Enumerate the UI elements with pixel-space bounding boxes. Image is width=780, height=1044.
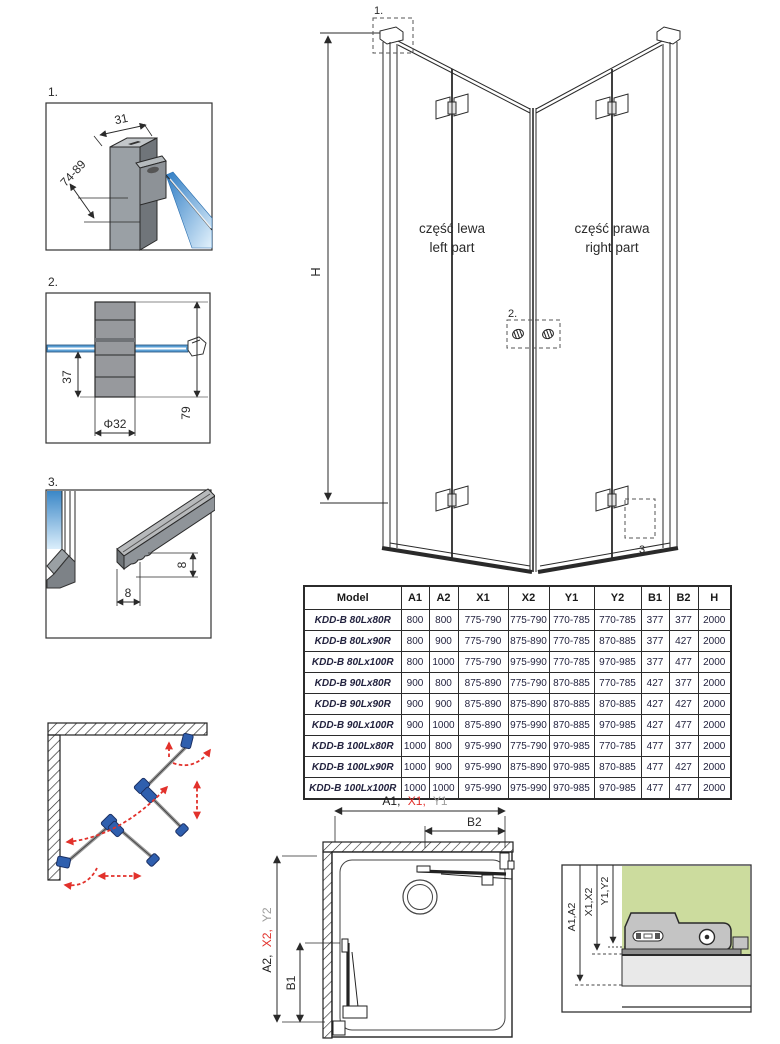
dim-label-37: 37 (60, 370, 74, 384)
col-header-b2: B2 (669, 586, 698, 610)
glass-panel (47, 491, 62, 549)
cell-value: 427 (641, 673, 669, 694)
table-header-row: Model A1 A2 X1 X2 Y1 Y2 B1 B2 H (304, 586, 731, 610)
dimension-a2-x2-y2: A2, X2, Y2 (260, 856, 325, 1022)
cell-value: 970-985 (549, 778, 594, 800)
hinge-block (417, 866, 430, 872)
cell-value: 900 (401, 694, 429, 715)
detail-3-number: 3. (48, 475, 58, 489)
callout-3-label: 3. (639, 544, 648, 556)
cell-value: 2000 (698, 673, 731, 694)
cell-value: 900 (429, 631, 458, 652)
cell-value: 2000 (698, 757, 731, 778)
knob-icon (541, 328, 554, 340)
cell-value: 875-890 (508, 757, 549, 778)
cell-value: 800 (429, 673, 458, 694)
left-part-label-pl: część lewa (419, 221, 486, 236)
wall-mount-detail: A1,A2 X1,X2 Y1,Y2 (555, 855, 780, 1020)
table-row: KDD-B 80Lx80R 800 800 775-790 775-790 77… (304, 610, 731, 631)
cell-value: 975-990 (508, 715, 549, 736)
hinge-block-icon (56, 856, 71, 868)
cell-value: 775-790 (458, 652, 508, 673)
cell-value: 875-890 (508, 631, 549, 652)
label-a2: A2, (260, 955, 274, 973)
cell-value: 870-885 (594, 631, 641, 652)
dim-label-phi32: Φ32 (104, 417, 127, 431)
fold-direction-arrows (65, 743, 210, 885)
cell-model: KDD-B 90Lx90R (304, 694, 401, 715)
tray-edge-strip (622, 955, 751, 986)
right-part-label-pl: część prawa (574, 221, 650, 236)
dim-label-x1x2: X1,X2 (583, 888, 595, 917)
detail-1-figure: 1. 31 74-89 (40, 80, 215, 255)
cell-value: 770-785 (594, 736, 641, 757)
side-tab (733, 937, 748, 949)
cell-value: 477 (669, 778, 698, 800)
cell-value: 770-785 (549, 631, 594, 652)
cell-value: 875-890 (458, 694, 508, 715)
callout-2-label: 2. (508, 308, 517, 320)
cell-value: 870-885 (549, 694, 594, 715)
table-row: KDD-B 90Lx90R 900 900 875-890 875-890 87… (304, 694, 731, 715)
cell-value: 2000 (698, 694, 731, 715)
dim-label-a2x2y2: A2, X2, Y2 (260, 907, 274, 973)
cell-value: 477 (641, 778, 669, 800)
cell-value: 900 (401, 673, 429, 694)
cell-value: 870-885 (594, 757, 641, 778)
cell-value: 1000 (401, 736, 429, 757)
dim-label-8w: 8 (125, 586, 132, 600)
cell-value: 900 (401, 715, 429, 736)
detail-3-figure: 3. 8 8 (40, 470, 215, 645)
plan-view: A1, X1, Y1 B2 (255, 790, 545, 1044)
cell-value: 775-790 (508, 736, 549, 757)
cell-value: 875-890 (508, 694, 549, 715)
detail-1-number: 1. (48, 85, 58, 99)
detail-2-number: 2. (48, 275, 58, 289)
technical-drawing-page: 1. 31 74-89 (0, 0, 780, 1044)
cell-value: 770-785 (549, 610, 594, 631)
cell-model: KDD-B 80Lx90R (304, 631, 401, 652)
cell-value: 477 (641, 757, 669, 778)
table-row: KDD-B 100Lx90R 1000 900 975-990 875-890 … (304, 757, 731, 778)
cell-value: 427 (641, 694, 669, 715)
cell-value: 775-790 (508, 673, 549, 694)
cell-value: 975-990 (508, 652, 549, 673)
cell-value: 900 (429, 757, 458, 778)
knob (95, 302, 135, 397)
cell-model: KDD-B 80Lx80R (304, 610, 401, 631)
corner-post (530, 108, 536, 572)
cell-value: 870-885 (549, 673, 594, 694)
cell-value: 875-890 (458, 673, 508, 694)
bracket-block (343, 1006, 367, 1018)
cell-value: 2000 (698, 778, 731, 800)
cell-value: 970-985 (549, 757, 594, 778)
cell-value: 377 (641, 652, 669, 673)
cell-value: 800 (401, 631, 429, 652)
cell-value: 377 (669, 610, 698, 631)
dim-label-a1a2: A1,A2 (566, 903, 578, 932)
cell-value: 1000 (401, 757, 429, 778)
cell-value: 770-785 (549, 652, 594, 673)
label-x1: X1, (408, 794, 426, 808)
left-part-label-en: left part (429, 240, 474, 255)
right-wall-profile (657, 27, 680, 550)
cell-value: 427 (669, 757, 698, 778)
table-row: KDD-B 90Lx80R 900 800 875-890 775-790 87… (304, 673, 731, 694)
col-header-b1: B1 (641, 586, 669, 610)
cell-value: 870-885 (594, 694, 641, 715)
cell-value: 477 (641, 736, 669, 757)
col-header-a1: A1 (401, 586, 429, 610)
cell-value: 427 (641, 715, 669, 736)
detail-2-figure: 2. 37 79 Φ32 (40, 270, 215, 450)
cell-value: 800 (401, 610, 429, 631)
callout-1-label: 1. (374, 5, 383, 17)
dim-label-b2: B2 (467, 815, 482, 829)
cell-value: 1000 (429, 652, 458, 673)
cell-value: 800 (401, 652, 429, 673)
label-x2: X2, (260, 929, 274, 947)
dimension-H: H (308, 33, 393, 503)
cell-value: 970-985 (594, 778, 641, 800)
table-row: KDD-B 80Lx90R 800 900 775-790 875-890 77… (304, 631, 731, 652)
dim-label-a1x1y1: A1, X1, Y1 (382, 794, 448, 808)
col-header-x2: X2 (508, 586, 549, 610)
top-wall (323, 842, 513, 852)
cell-value: 2000 (698, 652, 731, 673)
cell-value: 1000 (429, 715, 458, 736)
bracket-block (482, 875, 493, 885)
cell-value: 2000 (698, 736, 731, 757)
table-row: KDD-B 90Lx100R 900 1000 875-890 975-990 … (304, 715, 731, 736)
table-row: KDD-B 80Lx100R 800 1000 775-790 975-990 … (304, 652, 731, 673)
label-y1: Y1 (433, 794, 448, 808)
cell-value: 800 (429, 610, 458, 631)
col-header-x1: X1 (458, 586, 508, 610)
col-header-y2: Y2 (594, 586, 641, 610)
col-header-h: H (698, 586, 731, 610)
cell-value: 427 (669, 694, 698, 715)
col-header-model: Model (304, 586, 401, 610)
cell-value: 970-985 (594, 715, 641, 736)
folding-direction-schematic (25, 705, 255, 955)
cell-value: 770-785 (594, 673, 641, 694)
cell-value: 427 (669, 631, 698, 652)
cell-value: 775-790 (508, 610, 549, 631)
cell-value: 970-985 (594, 652, 641, 673)
spec-table-container: Model A1 A2 X1 X2 Y1 Y2 B1 B2 H KDD-B 80… (303, 585, 732, 800)
cell-value: 975-990 (458, 736, 508, 757)
right-part-label-en: right part (585, 240, 639, 255)
cell-value: 2000 (698, 610, 731, 631)
wall-profile-block (508, 861, 514, 869)
col-header-a2: A2 (429, 586, 458, 610)
cell-value: 900 (429, 694, 458, 715)
cell-value: 970-985 (549, 736, 594, 757)
bifold-door-left (56, 814, 160, 869)
table-row: KDD-B 100Lx80R 1000 800 975-990 775-790 … (304, 736, 731, 757)
left-wall (323, 852, 332, 1038)
cell-value: 800 (429, 736, 458, 757)
cell-model: KDD-B 80Lx100R (304, 652, 401, 673)
cell-model: KDD-B 90Lx80R (304, 673, 401, 694)
cell-value: 875-890 (458, 715, 508, 736)
dim-label-b1: B1 (284, 975, 298, 990)
cell-value: 775-790 (458, 631, 508, 652)
label-y2: Y2 (260, 907, 274, 922)
enclosure-elevation: H (290, 0, 760, 578)
cell-value: 2000 (698, 715, 731, 736)
knob-icon (511, 328, 524, 340)
bifold-door-top (134, 733, 194, 837)
dim-label-y1y2: Y1,Y2 (599, 877, 611, 906)
dim-label-79: 79 (179, 406, 193, 420)
cell-value: 2000 (698, 631, 731, 652)
cell-value: 377 (641, 631, 669, 652)
hinge-block (342, 939, 348, 952)
col-header-y1: Y1 (549, 586, 594, 610)
cell-model: KDD-B 100Lx80R (304, 736, 401, 757)
cell-value: 377 (641, 610, 669, 631)
callout-3: 3. (625, 499, 655, 556)
cell-value: 870-885 (549, 715, 594, 736)
wall-profile-block (333, 1021, 345, 1035)
cell-value: 377 (669, 736, 698, 757)
left-wall-profile (380, 27, 403, 550)
cell-value: 377 (669, 673, 698, 694)
cell-model: KDD-B 90Lx100R (304, 715, 401, 736)
dim-label-8h: 8 (175, 561, 189, 568)
cell-model: KDD-B 100Lx90R (304, 757, 401, 778)
cell-value: 770-785 (594, 610, 641, 631)
model-spec-table: Model A1 A2 X1 X2 Y1 Y2 B1 B2 H KDD-B 80… (303, 585, 732, 800)
label-a1: A1, (382, 794, 400, 808)
cell-value: 477 (669, 652, 698, 673)
dim-label-H: H (308, 267, 323, 276)
cell-value: 477 (669, 715, 698, 736)
cell-value: 975-990 (458, 757, 508, 778)
cell-value: 775-790 (458, 610, 508, 631)
